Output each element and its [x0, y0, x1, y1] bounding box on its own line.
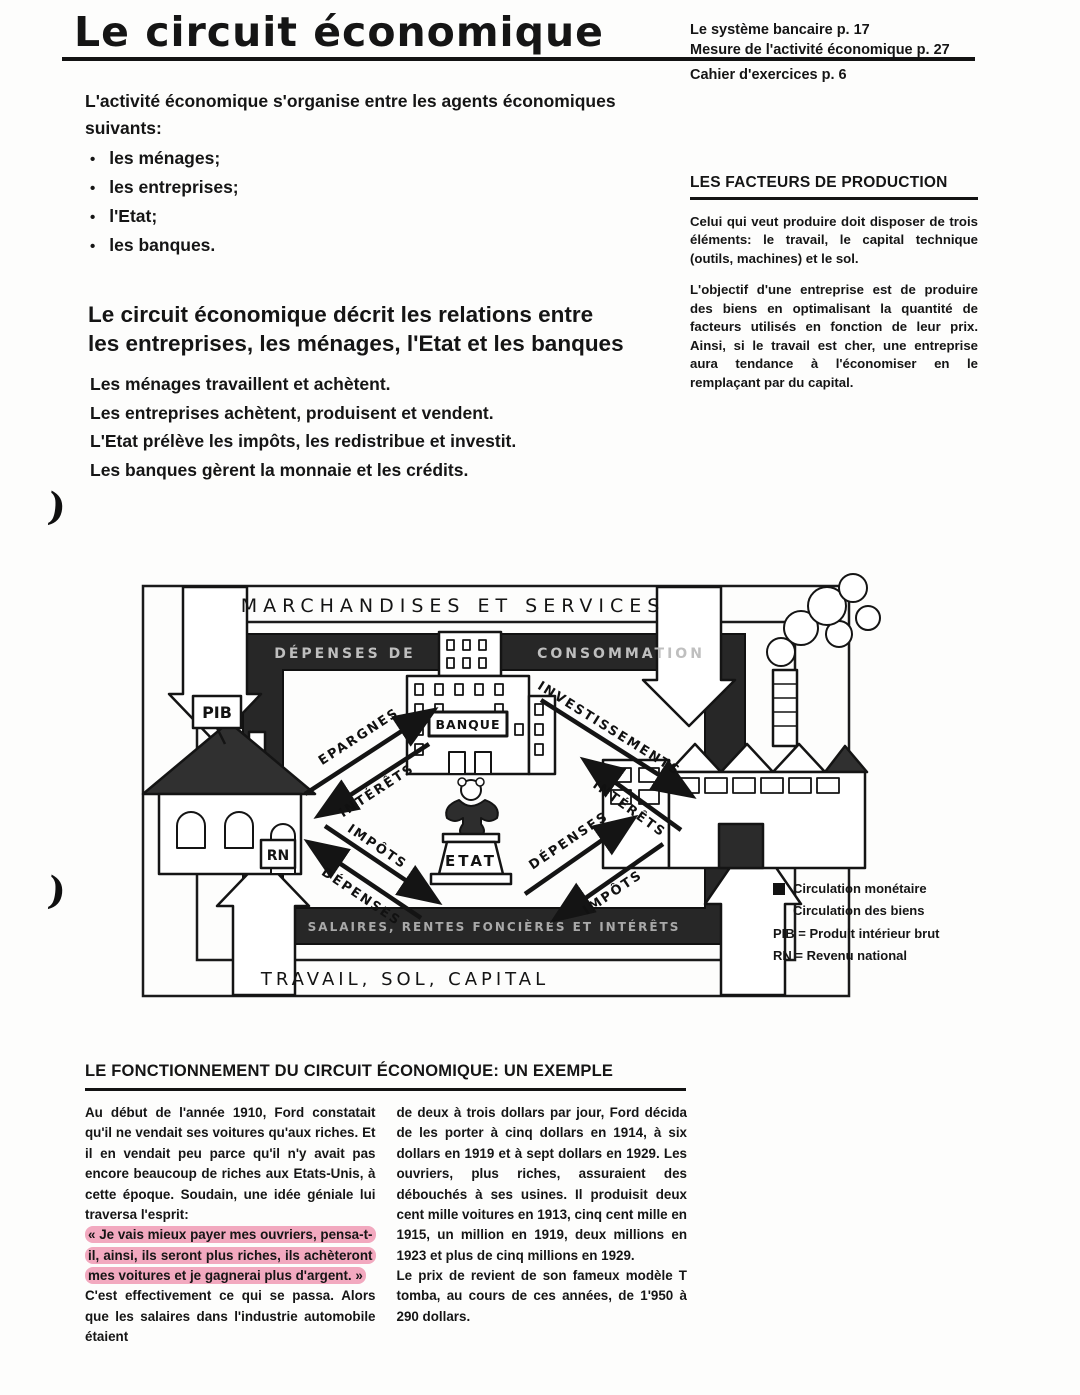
list-item: •les ménages; [90, 148, 239, 169]
example-section-heading: LE FONCTIONNEMENT DU CIRCUIT ÉCONOMIQUE:… [85, 1062, 686, 1091]
rn-sign: RN [267, 848, 290, 864]
title-rule [62, 57, 975, 61]
bullet-icon: • [90, 238, 95, 255]
filled-square-icon [773, 883, 785, 895]
cross-reference-line: Le système bancaire p. 17 [690, 20, 950, 40]
page-title: Le circuit économique [74, 8, 604, 56]
list-item: •les entreprises; [90, 177, 239, 198]
sidebar-paragraph: Celui qui veut produire doit disposer de… [690, 213, 978, 268]
etat-sign: ETAT [445, 852, 497, 870]
legend-abbreviation: RN = Revenu national [773, 949, 993, 962]
highlighted-quote: « Je vais mieux payer mes ouvriers, pens… [85, 1225, 376, 1286]
agents-bullet-list: •les ménages; •les entreprises; •l'Etat;… [90, 148, 239, 264]
cross-references: Le système bancaire p. 17 Mesure de l'ac… [690, 20, 950, 61]
arrow-label: INTÉRÊTS [336, 760, 417, 821]
bullet-icon: • [90, 151, 95, 168]
bullet-icon: • [90, 209, 95, 226]
paragraph: Le prix de revient de son fameux modèle … [397, 1266, 688, 1327]
handwritten-mark: ) [46, 483, 69, 530]
example-column-left: Au début de l'année 1910, Ford constatai… [85, 1103, 376, 1348]
example-column-right: de deux à trois dollars par jour, Ford d… [397, 1103, 688, 1348]
band-label-salaires: SALAIRES, RENTES FONCIÈRES ET INTÉRÊTS [308, 919, 681, 934]
paragraph: de deux à trois dollars par jour, Ford d… [397, 1103, 688, 1266]
example-columns: Au début de l'année 1910, Ford constatai… [85, 1103, 687, 1348]
legend-item: Circulation monétaire [773, 882, 993, 895]
loop-label-travail: TRAVAIL, SOL, CAPITAL [260, 969, 549, 990]
paragraph: Au début de l'année 1910, Ford constatai… [85, 1103, 376, 1225]
list-item: •les banques. [90, 235, 239, 256]
intro-paragraph: L'activité économique s'organise entre l… [85, 88, 697, 142]
banque-sign: BANQUE [436, 717, 501, 732]
paragraph: C'est effectivement ce qui se passa. Alo… [85, 1286, 376, 1347]
statement-line: Les banques gèrent la monnaie et les cré… [90, 462, 516, 480]
list-item: •l'Etat; [90, 206, 239, 227]
legend-abbreviation: PIB = Produit intérieur brut [773, 927, 993, 940]
statement-line: Les entreprises achètent, produisent et … [90, 405, 516, 423]
bullet-icon: • [90, 180, 95, 197]
sidebar-heading: LES FACTEURS DE PRODUCTION [690, 174, 978, 200]
cross-reference-line: Cahier d'exercices p. 6 [690, 67, 847, 83]
legend-item: Circulation des biens [793, 904, 993, 917]
sidebar-paragraph: L'objectif d'une entreprise est de produ… [690, 281, 978, 392]
smoke-icon [767, 574, 880, 666]
band-label-consommation: CONSOMMATION [537, 646, 705, 662]
band-label-depenses: DÉPENSES DE [274, 645, 416, 662]
statement-line: L'Etat prélève les impôts, les redistrib… [90, 433, 516, 451]
section-heading: Le circuit économique décrit les relatio… [88, 301, 624, 359]
diagram-legend: Circulation monétaire Circulation des bi… [773, 882, 993, 962]
agent-statements: Les ménages travaillent et achètent. Les… [90, 376, 516, 490]
sidebar-facteurs-production: LES FACTEURS DE PRODUCTION Celui qui veu… [690, 174, 978, 392]
pib-sign: PIB [202, 703, 232, 722]
handwritten-mark: ) [46, 867, 69, 914]
loop-label-marchandises: MARCHANDISES ET SERVICES [241, 595, 666, 617]
statement-line: Les ménages travaillent et achètent. [90, 376, 516, 394]
